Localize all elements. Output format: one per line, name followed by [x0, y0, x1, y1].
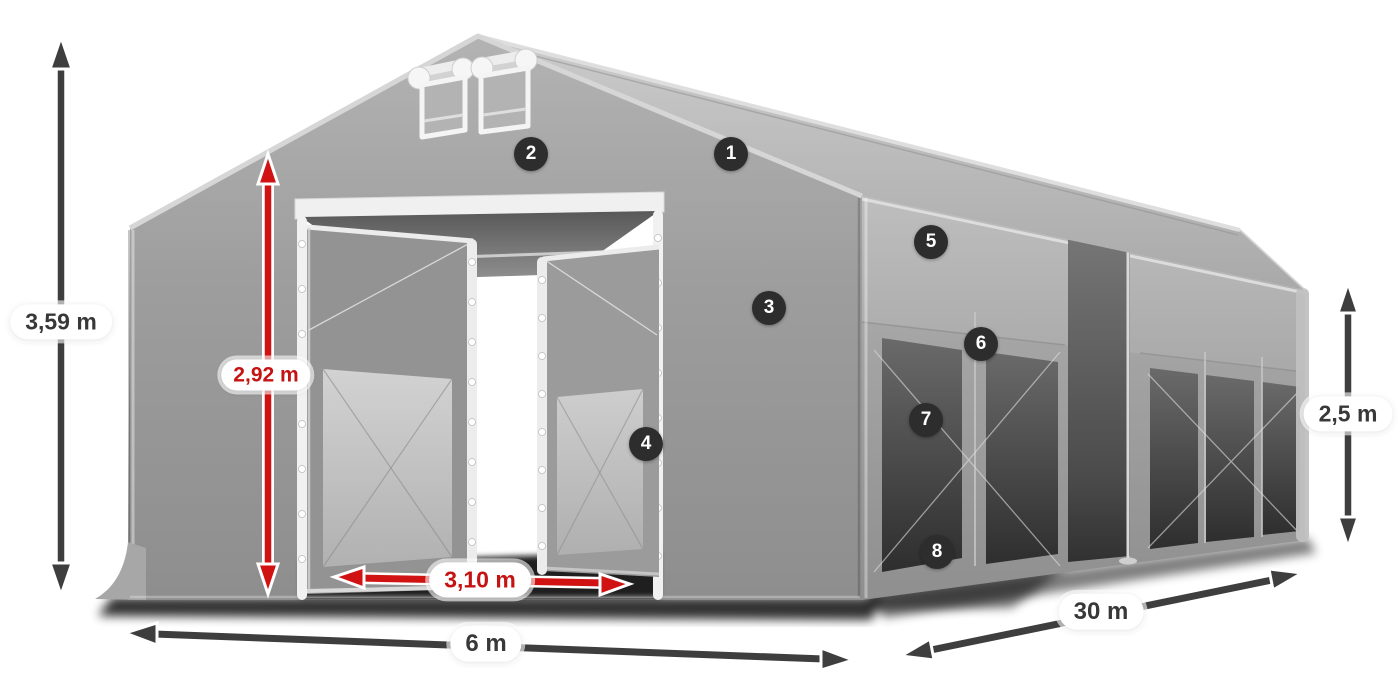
callout-badge-3[interactable]: 3	[752, 291, 786, 325]
base-valance	[95, 542, 146, 600]
callout-badge-5[interactable]: 5	[914, 225, 948, 259]
dimension-label-total-height: 3,59 m	[10, 304, 112, 339]
entrance	[295, 192, 664, 600]
dimension-label-side-height: 2,5 m	[1304, 396, 1393, 431]
dimension-label-entrance-height: 2,92 m	[221, 359, 310, 390]
callout-badge-4[interactable]: 4	[629, 427, 663, 461]
tent-illustration	[0, 0, 1400, 700]
callout-badge-7[interactable]: 7	[909, 403, 943, 437]
callout-badge-2[interactable]: 2	[514, 137, 548, 171]
vent-right	[471, 49, 537, 132]
side-open-section	[1068, 236, 1137, 565]
dimension-label-entrance-width: 3,10 m	[429, 562, 531, 597]
callout-badge-6[interactable]: 6	[964, 327, 998, 361]
right-door	[537, 247, 659, 577]
tent-dimension-diagram: 3,59 m 2,92 m 3,10 m 6 m 30 m 2,5 m 1 2 …	[0, 0, 1400, 700]
dimension-label-gable-width: 6 m	[450, 626, 521, 662]
left-jamb-pole	[297, 216, 307, 600]
left-door	[307, 227, 477, 594]
callout-badge-8[interactable]: 8	[920, 535, 954, 569]
dimension-label-length: 30 m	[1059, 594, 1144, 630]
callout-badge-1[interactable]: 1	[714, 137, 748, 171]
